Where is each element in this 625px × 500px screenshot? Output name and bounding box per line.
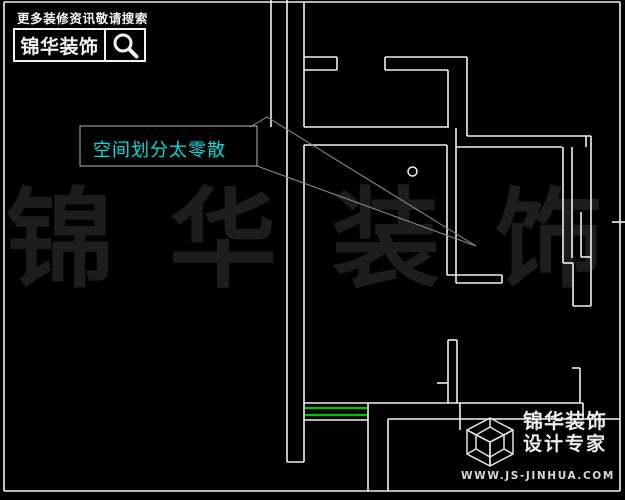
- brand-search-box[interactable]: 锦华装饰: [13, 28, 146, 62]
- footer-brand-line2: 设计专家: [523, 434, 607, 455]
- footer-brand: 锦华装饰 设计专家: [523, 411, 607, 455]
- annotation-label: 空间划分太零散: [93, 136, 226, 162]
- cube-icon: [462, 417, 518, 467]
- cad-floorplan-screenshot: 锦华装饰 空间划分太零散 更多装修资讯敬请搜索 锦华装饰: [0, 0, 625, 500]
- door-circle: [408, 167, 417, 176]
- footer-logo: 锦华装饰 设计专家 WWW.JS-JINHUA.COM: [455, 411, 621, 482]
- brand-name: 锦华装饰: [15, 30, 104, 60]
- leader-line: [250, 117, 476, 246]
- header-tagline: 更多装修资讯敬请搜索: [17, 8, 148, 27]
- footer-brand-line1: 锦华装饰: [523, 411, 607, 434]
- search-icon: [112, 32, 139, 59]
- footer-website-link[interactable]: WWW.JS-JINHUA.COM: [461, 470, 621, 482]
- search-button[interactable]: [106, 30, 144, 60]
